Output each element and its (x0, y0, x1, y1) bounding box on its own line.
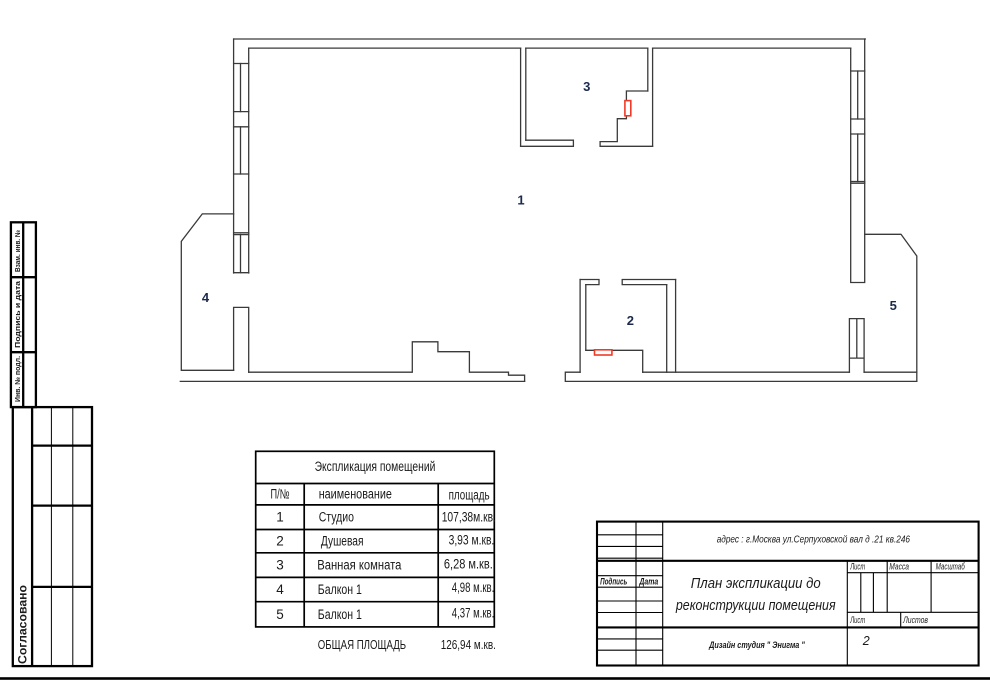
svg-text:5: 5 (276, 607, 284, 622)
svg-text:4: 4 (276, 582, 284, 597)
svg-text:107,38м.кв.: 107,38м.кв. (442, 510, 496, 525)
svg-text:5: 5 (890, 298, 897, 313)
svg-text:Подпись: Подпись (600, 576, 627, 586)
svg-text:Масштаб: Масштаб (936, 561, 966, 571)
svg-text:Масса: Масса (889, 561, 909, 571)
svg-text:реконструкции помещения: реконструкции помещения (675, 597, 836, 614)
svg-text:Душевая: Душевая (321, 534, 364, 549)
svg-text:Лист: Лист (850, 615, 866, 625)
svg-text:Подпись и дата: Подпись и дата (15, 281, 22, 348)
svg-text:3,93 м.кв.: 3,93 м.кв. (449, 533, 495, 548)
svg-text:Дизайн студия " Энигма ": Дизайн студия " Энигма " (708, 640, 805, 651)
svg-text:Инв. № подл.: Инв. № подл. (14, 356, 22, 402)
svg-text:наименование: наименование (319, 487, 392, 502)
svg-text:3: 3 (276, 558, 284, 573)
svg-text:126,94 м.кв.: 126,94 м.кв. (441, 637, 496, 652)
svg-text:4: 4 (202, 290, 210, 305)
svg-text:Студио: Студио (319, 510, 354, 525)
svg-text:2: 2 (276, 534, 284, 549)
svg-text:1: 1 (517, 193, 524, 208)
svg-text:2: 2 (627, 313, 634, 328)
svg-text:Балкон 1: Балкон 1 (318, 607, 362, 622)
svg-text:6,28 м.кв.: 6,28 м.кв. (444, 557, 493, 572)
svg-text:4,37 м.кв.: 4,37 м.кв. (452, 605, 495, 620)
svg-text:П/№: П/№ (271, 487, 290, 502)
svg-text:Балкон 1: Балкон 1 (318, 582, 362, 597)
svg-text:Дата: Дата (639, 576, 659, 586)
svg-text:Согласовано: Согласовано (16, 585, 30, 664)
svg-text:4,98 м.кв.: 4,98 м.кв. (452, 580, 495, 595)
svg-text:Взам. инв. №: Взам. инв. № (14, 230, 22, 272)
svg-text:Листов: Листов (902, 615, 928, 625)
svg-text:Лист: Лист (850, 561, 866, 571)
svg-text:1: 1 (276, 510, 284, 525)
svg-text:3: 3 (583, 79, 590, 94)
svg-text:площадь: площадь (449, 488, 490, 503)
svg-text:Экспликация помещений: Экспликация помещений (315, 459, 436, 474)
svg-text:ОБЩАЯ ПЛОЩАДЬ: ОБЩАЯ ПЛОЩАДЬ (318, 637, 406, 652)
svg-text:План экспликации до: План экспликации до (691, 575, 821, 592)
svg-text:Ванная комната: Ванная комната (317, 558, 402, 573)
svg-text:адрес : г.Москва ул.Серпуховск: адрес : г.Москва ул.Серпуховской вал д .… (717, 534, 910, 546)
svg-text:2: 2 (862, 634, 870, 648)
